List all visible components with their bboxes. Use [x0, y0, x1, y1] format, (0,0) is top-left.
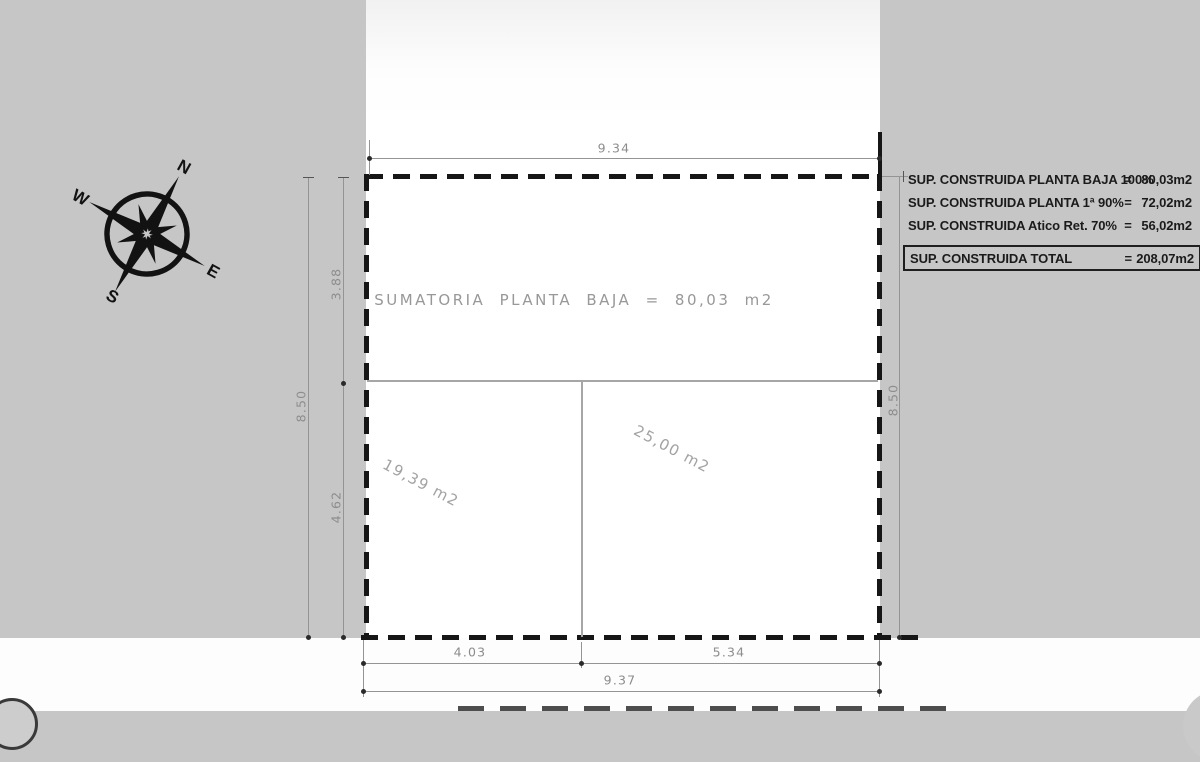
compass-w-label: W — [69, 185, 93, 210]
plot-paper — [366, 0, 880, 638]
dim-dot — [341, 635, 346, 640]
schedule-row-value: 80,03m2 — [1136, 172, 1192, 187]
schedule-total-label: SUP. CONSTRUIDA TOTAL — [910, 251, 1120, 266]
schedule-row-equals: = — [1120, 195, 1136, 210]
dim-top-value: 9.34 — [598, 141, 631, 156]
schedule-row-label: SUP. CONSTRUIDA PLANTA 1ª 90% — [908, 195, 1120, 210]
dim-line-top — [369, 158, 880, 159]
dim-line-left-split — [343, 177, 344, 637]
boundary-left — [364, 174, 369, 640]
schedule-row-label: SUP. CONSTRUIDA Atico Ret. 70% — [908, 218, 1120, 233]
schedule-total-equals: = — [1120, 251, 1136, 266]
dim-bottom-right-value: 5.34 — [713, 645, 746, 660]
floor-division-line — [367, 380, 878, 382]
compass-ring — [93, 180, 202, 289]
boundary-corner-mark — [878, 132, 882, 176]
schedule-leader-line — [882, 176, 908, 177]
dim-line-bottom-split — [363, 663, 880, 664]
schedule-row: SUP. CONSTRUIDA PLANTA BAJA 100% = 80,03… — [908, 168, 1192, 191]
schedule-total-row: SUP. CONSTRUIDA TOTAL = 208,07m2 — [903, 245, 1200, 271]
dim-left-upper-value: 3.88 — [329, 268, 344, 301]
dim-left-lower-value: 4.62 — [329, 491, 344, 524]
dim-dot — [579, 661, 584, 666]
dim-dot — [361, 689, 366, 694]
dim-right-value: 8.50 — [886, 384, 901, 417]
schedule-row-label: SUP. CONSTRUIDA PLANTA BAJA 100% — [908, 172, 1120, 187]
schedule-row-equals: = — [1120, 218, 1136, 233]
dim-left-total-value: 8.50 — [294, 390, 309, 423]
boundary-right — [877, 174, 882, 640]
schedule-row: SUP. CONSTRUIDA PLANTA 1ª 90% = 72,02m2 — [908, 191, 1192, 214]
dim-bottom-total-value: 9.37 — [604, 673, 637, 688]
schedule-row: SUP. CONSTRUIDA Atico Ret. 70% = 56,02m2 — [908, 214, 1192, 237]
compass-e-label: E — [204, 260, 223, 282]
dim-dot — [367, 156, 372, 161]
dim-dot — [877, 689, 882, 694]
dim-dot — [306, 635, 311, 640]
dim-dot — [361, 661, 366, 666]
boundary-bottom — [361, 635, 927, 640]
compass-s-label: S — [103, 285, 122, 307]
schedule-total-value: 208,07m2 — [1136, 251, 1194, 266]
schedule-row-value: 56,02m2 — [1136, 218, 1192, 233]
schedule-row-value: 72,02m2 — [1136, 195, 1192, 210]
dim-dot — [877, 156, 882, 161]
dim-tick — [903, 171, 904, 182]
dim-tick — [338, 177, 349, 178]
compass-n-label: N — [174, 156, 194, 179]
street-strip — [0, 638, 1200, 711]
ground-floor-summary-label: SUMATORIA PLANTA BAJA = 80,03 m2 — [374, 291, 774, 309]
dim-dot — [877, 661, 882, 666]
boundary-top — [366, 174, 881, 179]
dim-tick — [303, 177, 314, 178]
dim-bottom-left-value: 4.03 — [454, 645, 487, 660]
dim-dot — [897, 635, 902, 640]
dim-line-bottom-total — [363, 691, 880, 692]
area-schedule: SUP. CONSTRUIDA PLANTA BAJA 100% = 80,03… — [908, 168, 1192, 237]
compass-rose: N E S W — [68, 155, 226, 313]
cutoff-text-fragments — [458, 706, 958, 711]
schedule-row-equals: = — [1120, 172, 1136, 187]
dim-dot — [341, 381, 346, 386]
room-division-line — [581, 381, 583, 637]
